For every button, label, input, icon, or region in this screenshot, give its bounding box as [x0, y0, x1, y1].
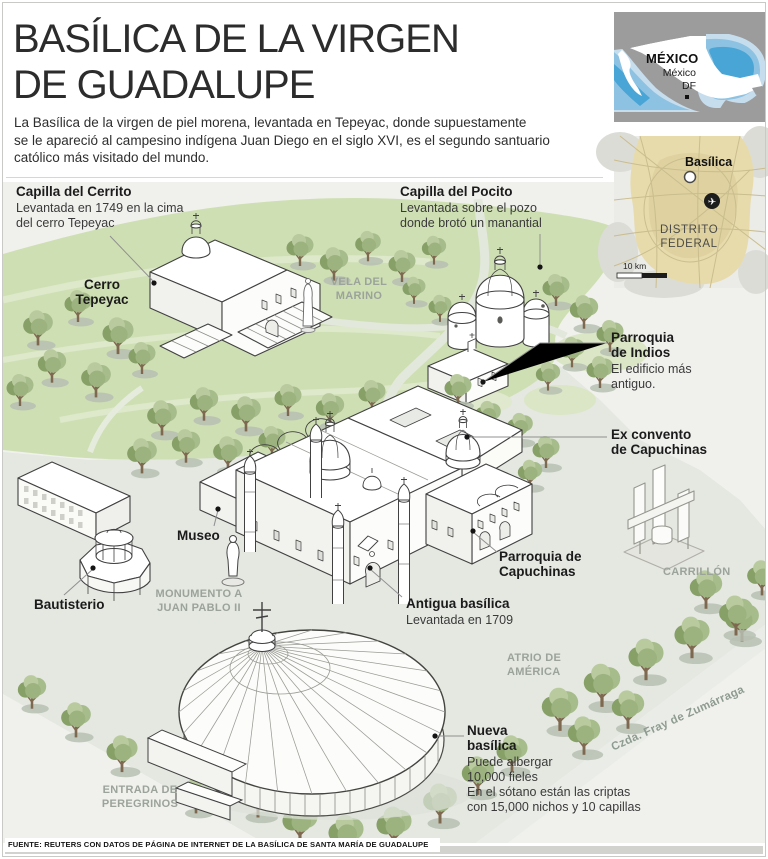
label-entrada-de-peregrinos: ENTRADA DE PEREGRINOS: [101, 784, 179, 812]
airport-icon: ✈: [704, 193, 720, 209]
callout-desc: Levantada en 1749 en la cima del cerro T…: [16, 201, 196, 231]
tower-back-mid: [310, 417, 322, 498]
callout-title: Ex convento de Capuchinas: [611, 427, 761, 457]
label-carrillon: CARRILLÓN: [663, 566, 730, 580]
callout-desc: Levantada en 1709: [406, 613, 586, 628]
callout-desc: Puede albergar 10,000 fieles En el sótan…: [467, 755, 677, 815]
basilica-marker: [685, 172, 696, 183]
scalebar-black: [642, 273, 667, 278]
infographic-page: { "header": { "title": "BASÍLICA DE LA V…: [0, 0, 768, 859]
label-cerro-tepeyac: Cerro Tepeyac: [58, 277, 146, 307]
header-divider: [6, 177, 603, 178]
label-monumento-juan-pablo-ii: MONUMENTO A JUAN PABLO II: [150, 588, 248, 616]
callout-capilla-del-pocito: Capilla del Pocito Levantada sobre el po…: [400, 184, 580, 231]
tower-front-right: [398, 477, 410, 604]
page-title: BASÍLICA DE LA VIRGEN DE GUADALUPE: [13, 16, 459, 108]
callout-bautisterio: Bautisterio: [34, 597, 105, 612]
intro-paragraph: La Basílica de la virgen de piel morena,…: [14, 114, 622, 167]
callout-parroquia-de-capuchinas: Parroquia de Capuchinas: [499, 549, 619, 579]
map-region-label: DISTRITO FEDERAL: [660, 223, 718, 252]
df-marker: [685, 95, 689, 99]
callout-parroquia-de-indios: Parroquia de Indios El edificio más anti…: [611, 330, 761, 392]
callout-antigua-basilica: Antigua basílica Levantada en 1709: [406, 596, 586, 628]
tower-back-left: [244, 449, 256, 552]
map-basilica-label: Basílica: [685, 155, 732, 169]
callout-title: Antigua basílica: [406, 596, 586, 611]
map-country-name: MÉXICO: [646, 51, 698, 66]
scalebar-white: [617, 273, 642, 278]
callout-title: Capilla del Pocito: [400, 184, 580, 199]
map-scale-label: 10 km: [623, 261, 646, 271]
map-city-label: México DF: [652, 67, 696, 92]
callout-capilla-del-cerrito: Capilla del Cerrito Levantada en 1749 en…: [16, 184, 196, 231]
source-credit: FUENTE: REUTERS CON DATOS DE PÁGINA DE I…: [5, 838, 440, 852]
label-atrio-de-america: ATRIO DE AMÉRICA: [507, 652, 561, 680]
callout-title: Parroquia de Capuchinas: [499, 549, 619, 579]
callout-desc: El edificio más antiguo.: [611, 362, 761, 392]
svg-text:✈: ✈: [708, 197, 716, 208]
callout-title: Capilla del Cerrito: [16, 184, 196, 199]
callout-museo: Museo: [177, 528, 220, 543]
callout-title: Parroquia de Indios: [611, 330, 761, 360]
label-vela-del-marino: VELA DEL MARINO: [318, 276, 400, 304]
callout-ex-convento: Ex convento de Capuchinas: [611, 427, 761, 457]
tower-front-left: [332, 503, 344, 604]
callout-desc: Levantada sobre el pozo donde brotó un m…: [400, 201, 580, 231]
